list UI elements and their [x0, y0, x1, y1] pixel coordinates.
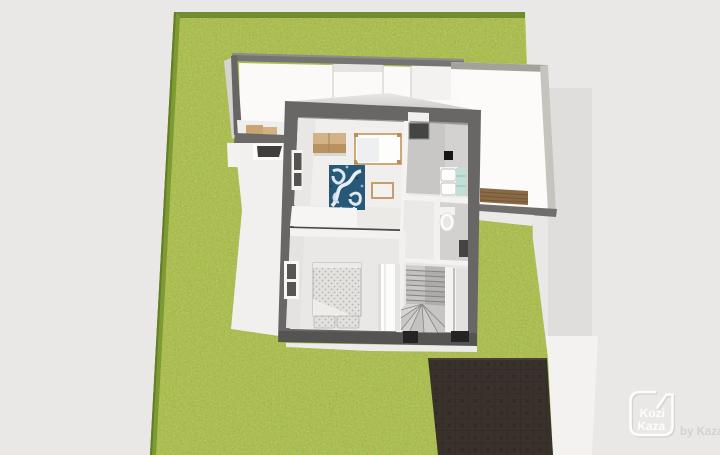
svg-text:by Kazapla: by Kazapla	[680, 426, 720, 438]
svg-text:Kozi: Kozi	[639, 406, 665, 420]
svg-text:Kaza: Kaza	[637, 419, 666, 433]
